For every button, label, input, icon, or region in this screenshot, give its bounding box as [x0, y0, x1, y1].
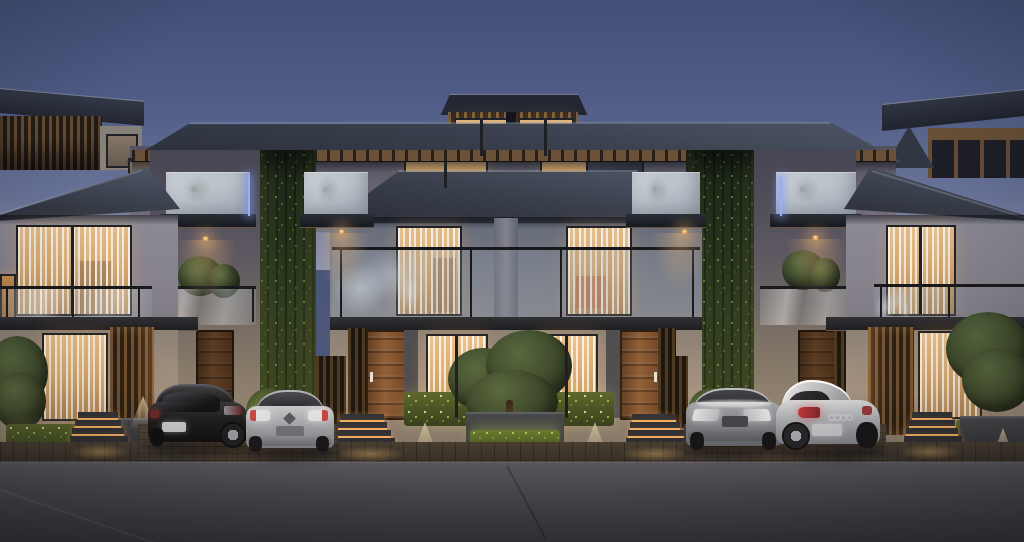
car-deck-highlight — [696, 400, 772, 407]
curb-line — [0, 461, 1024, 463]
car-taillight-far — [862, 406, 872, 415]
door-handle — [654, 372, 657, 382]
balcony-slab-center-left — [300, 214, 374, 228]
center-rail-post-3 — [560, 247, 562, 319]
dusk-townhouse-render — [0, 0, 1024, 542]
deck-glow-3 — [620, 446, 690, 462]
right-corner-tree-2 — [962, 348, 1024, 412]
frosted-balcony-right-bay — [776, 172, 856, 218]
center-roof-ridge — [398, 170, 638, 172]
car-license-plate — [162, 422, 186, 432]
canopy-left-wing — [0, 317, 198, 331]
car-wheel-left — [150, 428, 164, 446]
car-gray-sedan — [686, 388, 782, 452]
car-black-coupe — [148, 384, 248, 450]
balcony-led-strip-left — [248, 174, 250, 216]
car-wheel-left — [782, 422, 810, 450]
car-taillight-right — [308, 410, 328, 421]
balcony-led-strip-right — [780, 176, 782, 216]
car-wheel-right — [316, 436, 329, 452]
car-taillight — [798, 407, 820, 418]
center-door-right — [620, 330, 662, 420]
center-rail-post-2 — [470, 247, 472, 319]
center-door-left — [366, 330, 408, 420]
car-wheel-left — [690, 432, 704, 450]
deck-glow-1 — [70, 444, 130, 460]
frosted-balcony-left-bay — [166, 172, 250, 218]
canopy-center — [330, 317, 702, 331]
deck-glow-4 — [900, 444, 960, 460]
light-wash-center-left — [314, 233, 370, 293]
left-pavilion-slat-screen — [0, 116, 102, 170]
car-license-plate — [812, 424, 842, 436]
right-wing-eave-shadow — [846, 215, 1024, 225]
right-pavilion-posts — [928, 140, 1024, 178]
car-light-left — [692, 409, 721, 421]
car-silver-hatchback — [246, 390, 334, 454]
car-taillight-right — [224, 406, 242, 415]
car-taillight-left — [250, 410, 270, 421]
left-bay-rail-post-2 — [252, 286, 254, 322]
center-door-left-slats — [348, 328, 366, 418]
car-license-plate — [722, 416, 748, 427]
car-wheel-right — [220, 422, 246, 448]
left-wing-ground-window — [42, 333, 108, 421]
door-handle — [370, 372, 373, 382]
frosted-balcony-center-left — [304, 172, 368, 218]
light-wash-left-bay — [176, 240, 236, 304]
car-wheel-right — [856, 422, 878, 448]
left-wing-eave-shadow — [0, 215, 178, 225]
center-balustrade — [332, 247, 700, 322]
light-wash-center-right — [652, 233, 708, 293]
frosted-balcony-center-right — [632, 172, 700, 218]
car-wheel-left — [249, 436, 262, 452]
car-wheel-right — [762, 432, 776, 450]
main-roof-ridge — [190, 122, 830, 124]
deck-glow-2 — [335, 446, 405, 462]
car-brand-rings — [828, 413, 854, 421]
car-taillight-left — [150, 410, 159, 418]
balcony-slab-center-right — [626, 214, 706, 228]
light-wash-right-bay — [786, 239, 846, 303]
car-rear-window — [162, 392, 220, 412]
car-silver-coupe — [776, 380, 880, 452]
